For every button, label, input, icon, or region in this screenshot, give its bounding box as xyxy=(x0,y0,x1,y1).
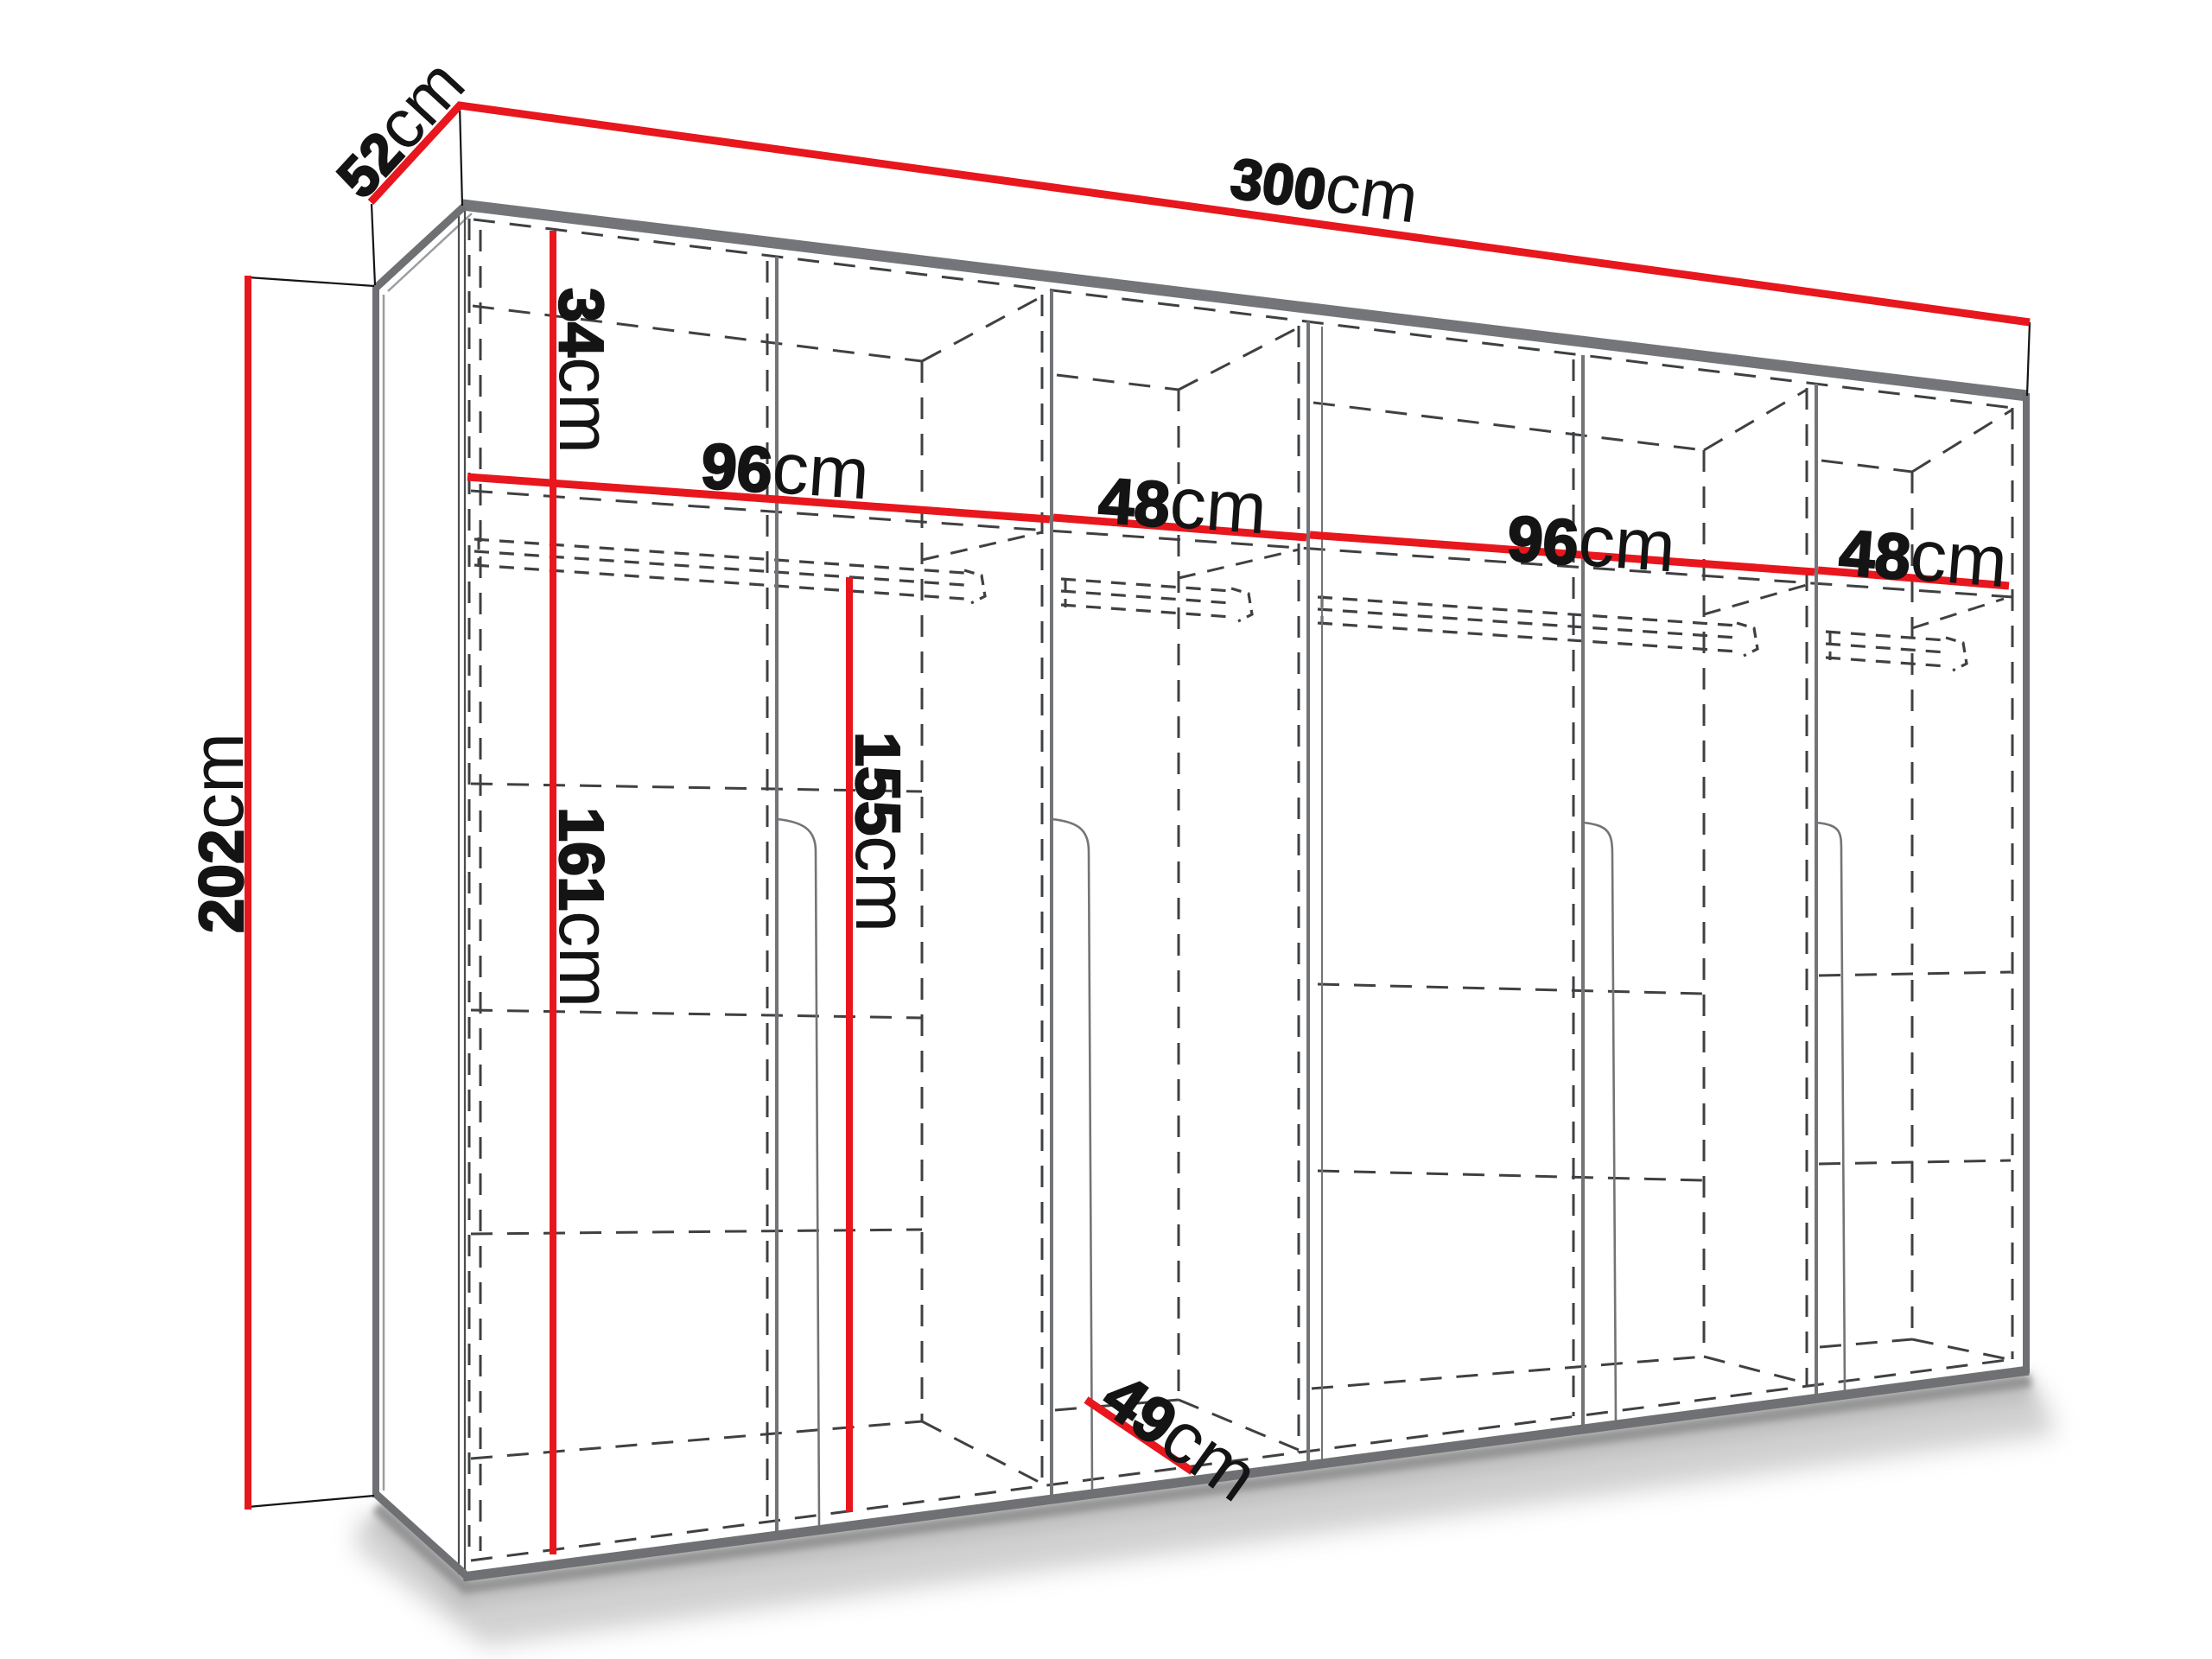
svg-text:161cm: 161cm xyxy=(544,807,626,1007)
svg-text:34cm: 34cm xyxy=(544,288,626,454)
svg-text:96cm: 96cm xyxy=(699,422,872,514)
svg-text:202cm: 202cm xyxy=(177,733,258,933)
svg-text:48cm: 48cm xyxy=(1837,508,2011,602)
svg-text:48cm: 48cm xyxy=(1096,456,1269,549)
svg-text:155cm: 155cm xyxy=(841,732,922,932)
svg-text:96cm: 96cm xyxy=(1505,494,1678,587)
